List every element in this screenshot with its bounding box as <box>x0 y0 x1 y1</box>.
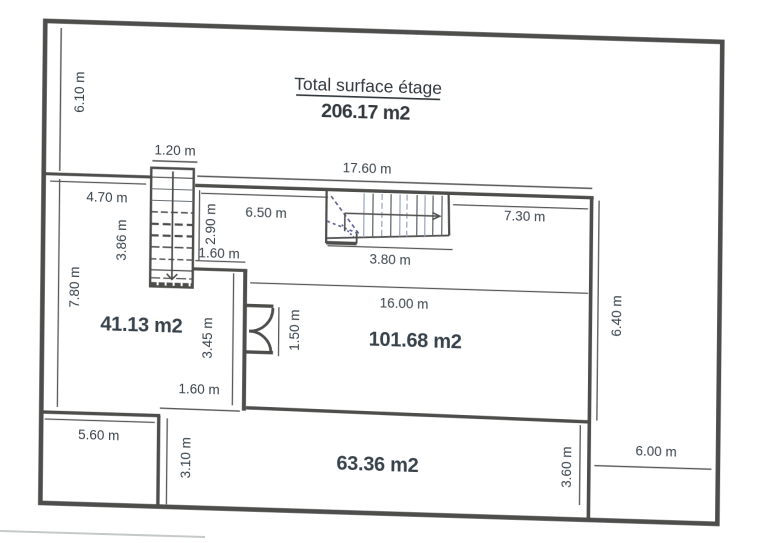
svg-text:3.80 m: 3.80 m <box>369 252 410 268</box>
svg-text:3.45 m: 3.45 m <box>200 317 215 359</box>
svg-text:3.10 m: 3.10 m <box>178 437 193 479</box>
svg-text:1.20 m: 1.20 m <box>154 142 195 158</box>
svg-text:206.17 m2: 206.17 m2 <box>321 100 411 125</box>
svg-text:6.50 m: 6.50 m <box>245 204 286 220</box>
svg-text:3.60 m: 3.60 m <box>559 446 574 488</box>
svg-text:6.40 m: 6.40 m <box>609 295 624 337</box>
svg-text:6.10 m: 6.10 m <box>72 71 87 113</box>
svg-text:41.13 m2: 41.13 m2 <box>100 313 182 338</box>
svg-text:3.86 m: 3.86 m <box>114 219 129 261</box>
svg-text:6.00 m: 6.00 m <box>635 444 676 460</box>
svg-text:4.70 m: 4.70 m <box>86 189 127 205</box>
svg-text:2.90 m: 2.90 m <box>203 203 218 245</box>
svg-text:101.68 m2: 101.68 m2 <box>369 329 462 354</box>
svg-text:17.60 m: 17.60 m <box>343 160 392 177</box>
svg-text:16.00 m: 16.00 m <box>380 295 429 312</box>
svg-text:7.80 m: 7.80 m <box>67 266 82 308</box>
svg-text:1.50 m: 1.50 m <box>287 309 302 351</box>
svg-text:5.60 m: 5.60 m <box>78 427 119 443</box>
svg-text:1.60 m: 1.60 m <box>178 381 219 397</box>
svg-text:7.30 m: 7.30 m <box>504 208 545 224</box>
svg-text:1.60 m: 1.60 m <box>198 245 239 261</box>
svg-text:63.36 m2: 63.36 m2 <box>336 453 418 478</box>
